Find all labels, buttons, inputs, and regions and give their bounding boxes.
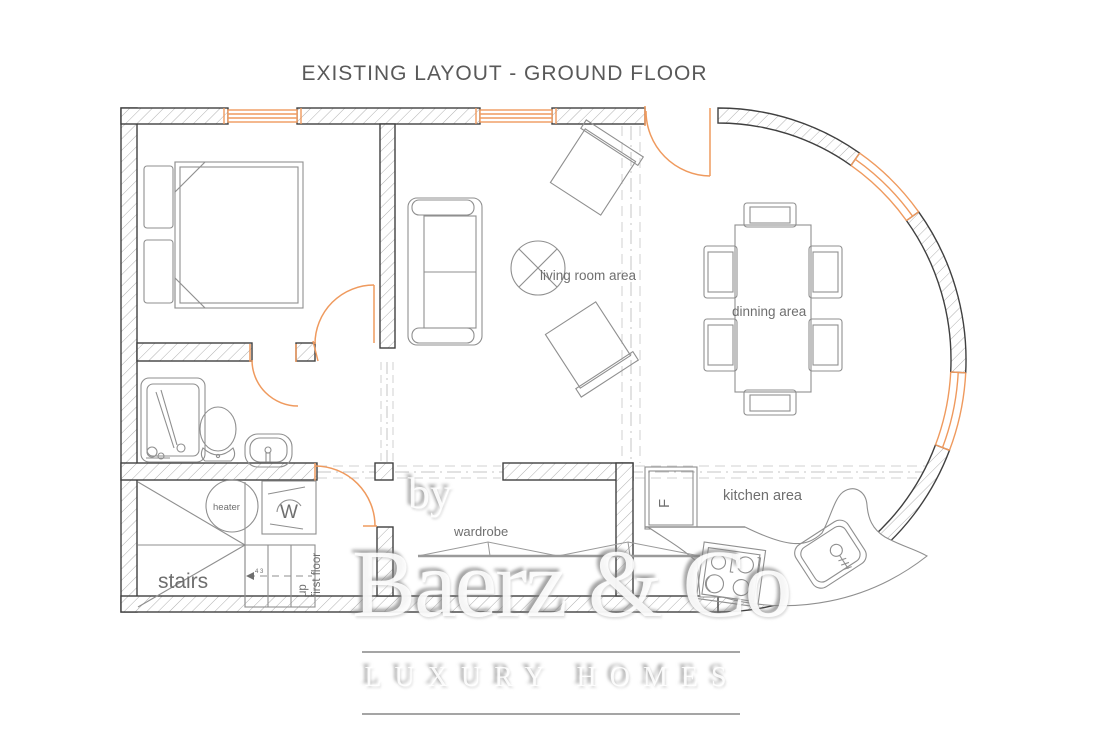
wall-wardrobe-east xyxy=(616,463,633,596)
doors xyxy=(250,106,710,526)
stairs-count-mark: 4 3 xyxy=(255,569,264,575)
bedroom-window xyxy=(224,108,301,124)
wall-top-3 xyxy=(552,108,645,124)
sofa xyxy=(408,198,482,345)
floor-plan-drawing: living room area dinning area kitchen ar… xyxy=(0,0,1104,751)
fridge-letter: F xyxy=(656,499,673,508)
wall-curve-top xyxy=(718,108,860,165)
wall-wardrobe-top xyxy=(503,463,633,480)
dining-area-label: dinning area xyxy=(732,304,807,319)
furniture xyxy=(138,120,927,607)
curve-window-lower xyxy=(936,372,966,450)
living-room-label: living room area xyxy=(540,268,637,283)
bedroom-door xyxy=(313,285,374,361)
armchair-top xyxy=(547,120,643,217)
kitchen-area-label: kitchen area xyxy=(723,488,803,504)
armchair-bottom xyxy=(542,300,638,397)
living-window xyxy=(476,108,556,124)
wall-left xyxy=(121,108,137,612)
kitchen-counter xyxy=(645,489,927,606)
wall-bottom xyxy=(121,596,720,612)
wall-bedroom-bottom-stub xyxy=(296,343,315,361)
wall-hall-stub xyxy=(375,463,393,480)
wardrobe-label: wardrobe xyxy=(453,524,508,539)
bathtub xyxy=(141,378,205,462)
wall-wardrobe-west xyxy=(377,527,393,596)
wall-living-west xyxy=(380,124,395,348)
washing-machine-letter: W xyxy=(280,502,298,523)
stairs-label: stairs xyxy=(158,570,208,593)
curve-window-upper xyxy=(851,153,919,221)
stairs-up-label: up xyxy=(297,584,309,597)
wall-top-2 xyxy=(297,108,480,124)
bed xyxy=(144,162,303,308)
floor-plan-page: EXISTING LAYOUT - GROUND FLOOR xyxy=(0,0,1104,751)
wall-bathroom-bottom xyxy=(121,463,317,480)
washbasin xyxy=(245,434,292,467)
heater-label: heater xyxy=(213,502,240,513)
bathroom-door xyxy=(250,344,298,406)
zone-divider-lines xyxy=(317,126,935,478)
stairs-first-floor-label: first floor xyxy=(311,553,323,597)
fridge xyxy=(645,467,697,529)
wardrobe-rail xyxy=(418,542,700,556)
wall-curve-mid xyxy=(907,212,967,373)
entrance-door xyxy=(645,106,710,176)
wall-top-1 xyxy=(121,108,228,124)
wall-bedroom-bottom-1 xyxy=(137,343,252,361)
